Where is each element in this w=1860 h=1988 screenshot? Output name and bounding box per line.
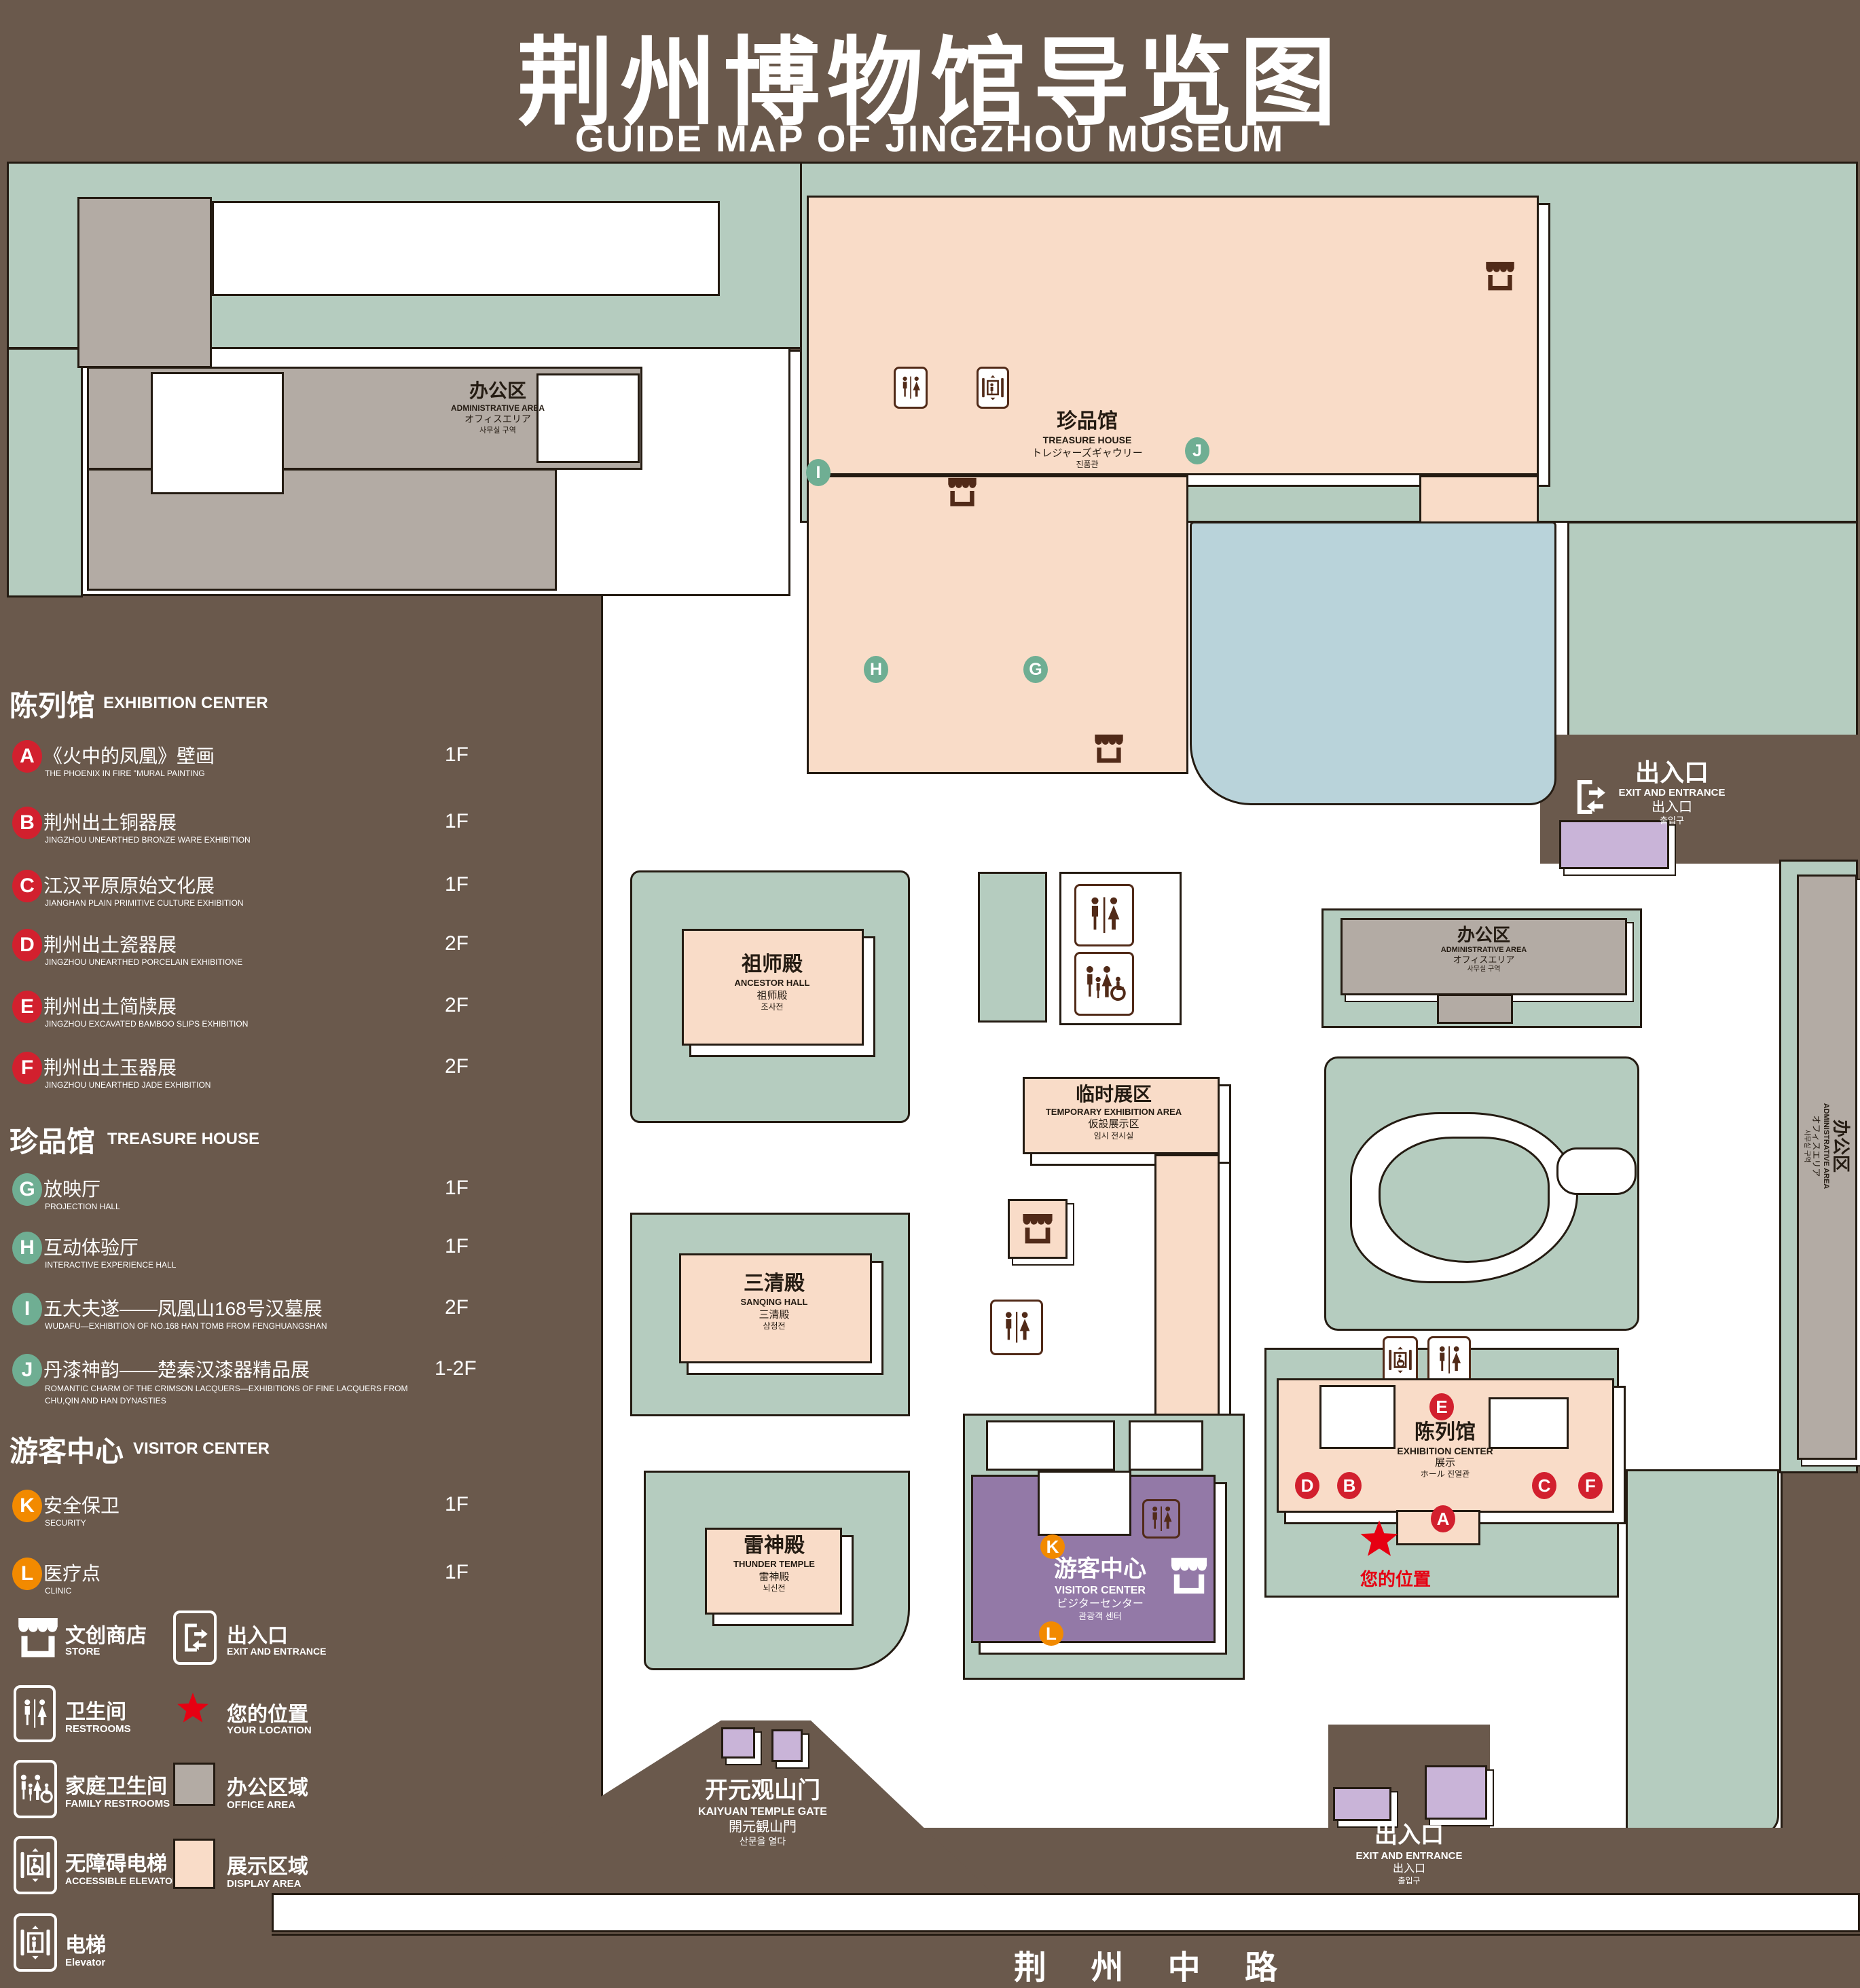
exit-bottom-building-east	[1425, 1765, 1487, 1820]
legend-item-B-zh: 荆州出土铜器展	[43, 808, 177, 835]
exit-bottom-label: 出入口 EXIT AND ENTRANCE 出入口 출입구	[1307, 1821, 1511, 1886]
legend-icon-elevator-zh: 电梯	[65, 1928, 106, 1958]
legend-item-F-floor: 2F	[445, 1055, 469, 1078]
legend-icon-location-zh: 您的位置	[227, 1697, 308, 1727]
restroom-icon	[14, 1685, 56, 1742]
gate-label: 开元观山门 KAIYUAN TEMPLE GATE 開元観山門 산문을 열다	[661, 1776, 864, 1847]
store-icon	[1484, 258, 1516, 293]
thunder-temple-label: 雷神殿 THUNDER TEMPLE 雷神殿 뇌신전	[686, 1533, 862, 1594]
lawn-right-upper	[1567, 521, 1858, 737]
legend-item-J-floor: 1-2F	[435, 1357, 477, 1380]
legend-icon-location-en: YOUR LOCATION	[227, 1725, 312, 1736]
legend-item-L-zh: 医疗点	[43, 1559, 101, 1586]
legend-badge-E: E	[12, 991, 42, 1023]
legend-icon-family-en: FAMILY RESTROOMS	[65, 1798, 170, 1809]
legend-icon-display-zh: 展示区域	[227, 1849, 308, 1879]
restroom-icon	[990, 1300, 1043, 1355]
legend-icon-restroom-zh: 卫生间	[65, 1695, 126, 1725]
admin-right-tab	[1437, 994, 1513, 1024]
store-icon	[947, 474, 978, 509]
ancestor-hall-label: 祖师殿 ANCESTOR HALL 祖师殿 조사전	[684, 952, 860, 1013]
legend-section-exhibition-zh: 陈列馆	[10, 683, 95, 724]
family-restroom-icon	[1074, 952, 1134, 1016]
legend-icon-store-zh: 文创商店	[65, 1619, 147, 1649]
display-area-swatch	[173, 1839, 215, 1889]
restroom-icon	[1142, 1499, 1180, 1539]
map-marker-B: B	[1337, 1472, 1362, 1499]
legend-item-F-zh: 荆州出土玉器展	[43, 1053, 177, 1080]
legend-icon-office-en: OFFICE AREA	[227, 1799, 295, 1811]
legend-badge-J: J	[12, 1354, 42, 1386]
map-marker-F: F	[1578, 1472, 1603, 1499]
legend-item-E-floor: 2F	[445, 994, 469, 1017]
map-marker-I: I	[806, 459, 831, 486]
road-sidewalk	[272, 1893, 1860, 1932]
legend-item-J-en: ROMANTIC CHARM OF THE CRIMSON LACQUERS—E…	[45, 1382, 412, 1407]
legend-item-C-zh: 江汉平原原始文化展	[43, 871, 215, 898]
admin-right-label: 办公区 ADMINISTRATIVE AREA オフィスエリア 사무실 구역	[1382, 925, 1586, 974]
legend-item-A-zh: 《火中的凤凰》壁画	[43, 741, 215, 769]
lawn-center-small	[978, 872, 1047, 1023]
lawn-right-lower	[1626, 1469, 1779, 1836]
elevator-icon	[977, 367, 1009, 409]
legend-item-H-floor: 1F	[445, 1235, 469, 1258]
legend-section-exhibition-en: EXHIBITION CENTER	[103, 694, 268, 713]
legend-item-D-en: JINGZHOU UNEARTHED PORCELAIN EXHIBITIONE	[45, 957, 242, 967]
legend-item-H-en: INTERACTIVE EXPERIENCE HALL	[45, 1260, 176, 1270]
office-area-swatch	[173, 1763, 215, 1806]
legend-badge-F: F	[12, 1052, 42, 1084]
legend-badge-D: D	[12, 929, 42, 961]
legend-item-I-en: WUDAFU—EXHIBITION OF NO.168 HAN TOMB FRO…	[45, 1321, 327, 1331]
elevator-icon	[14, 1913, 57, 1972]
sanqing-hall-label: 三清殿 SANQING HALL 三清殿 삼청전	[686, 1271, 862, 1332]
legend-badge-H: H	[12, 1232, 42, 1264]
restroom-icon	[1074, 884, 1134, 946]
legend-icon-office-zh: 办公区域	[227, 1771, 308, 1801]
lawn-left-strip	[7, 348, 83, 597]
legend-item-F-en: JINGZHOU UNEARTHED JADE EXHIBITION	[45, 1080, 211, 1090]
legend-badge-I: I	[12, 1293, 42, 1325]
map-marker-K: K	[1040, 1534, 1065, 1559]
legend-icon-accessible-en: ACCESSIBLE ELEVATOR	[65, 1875, 179, 1886]
legend-item-A-floor: 1F	[445, 743, 469, 767]
legend-badge-A: A	[12, 740, 42, 773]
legend-icon-display-en: DISPLAY AREA	[227, 1878, 301, 1890]
visitor-courtyard-1	[986, 1420, 1115, 1471]
legend-icon-accessible-zh: 无障碍电梯	[65, 1847, 167, 1877]
legend-icon-elevator-en: Elevator	[65, 1957, 105, 1968]
guide-map-page: 荆州博物馆导览图 GUIDE MAP OF JINGZHOU MUSEUM 办公…	[0, 0, 1860, 1988]
exit-bottom-building-west	[1333, 1787, 1391, 1821]
your-location-text: 您的位置	[1341, 1566, 1450, 1591]
legend-item-I-floor: 2F	[445, 1296, 469, 1319]
temporary-exhibition-label: 临时展区 TEMPORARY EXHIBITION AREA 仮設展示区 임시 …	[1012, 1082, 1216, 1141]
family-restroom-icon	[14, 1760, 57, 1818]
legend-icon-restroom-en: RESTROOMS	[65, 1723, 131, 1735]
map-marker-J: J	[1185, 437, 1209, 464]
store-icon	[16, 1615, 60, 1659]
legend-item-A-en: THE PHOENIX IN FIRE "MURAL PAINTING	[45, 769, 205, 778]
legend-item-C-floor: 1F	[445, 873, 469, 896]
map-marker-L: L	[1039, 1621, 1063, 1646]
legend-section-treasure-en: TREASURE HOUSE	[107, 1130, 259, 1149]
legend-item-K-zh: 安全保卫	[43, 1491, 120, 1518]
restroom-icon	[1427, 1336, 1471, 1384]
legend-icon-family-zh: 家庭卫生间	[65, 1769, 167, 1799]
map-marker-C: C	[1532, 1472, 1556, 1499]
map-marker-H: H	[864, 656, 888, 683]
exit-top-building	[1559, 820, 1669, 869]
visitor-notch	[1038, 1471, 1131, 1536]
exit-top-label: 出入口 EXIT AND ENTRANCE 出入口 출입구	[1570, 758, 1774, 826]
admin-top-label: 办公区 ADMINISTRATIVE AREA オフィスエリア 사무실 구역	[396, 379, 600, 435]
legend-icon-exit-en: EXIT AND ENTRANCE	[227, 1646, 327, 1657]
admin-side-label: 办公区 ADMINISTRATIVE AREA オフィスエリア 사무실 구역	[1802, 1044, 1851, 1248]
visitor-center-label: 游客中心 VISITOR CENTER ビジターセンター 관광객 센터	[998, 1555, 1202, 1622]
your-location-star-icon	[1358, 1520, 1400, 1560]
road-label: 荆 州 中 路	[944, 1940, 1365, 1988]
location-star-icon	[175, 1692, 211, 1726]
pond	[1190, 521, 1556, 805]
legend-item-G-zh: 放映厅	[43, 1175, 101, 1202]
legend-item-B-en: JINGZHOU UNEARTHED BRONZE WARE EXHIBITIO…	[45, 835, 251, 845]
map-marker-A: A	[1431, 1505, 1455, 1532]
temporary-exhibition-wing	[1154, 1154, 1220, 1427]
admin-top-courtyard-1	[151, 372, 284, 494]
legend-section-visitor-zh: 游客中心	[10, 1429, 124, 1470]
gate-building-east	[771, 1729, 803, 1762]
map-marker-D: D	[1295, 1472, 1319, 1499]
legend-item-G-floor: 1F	[445, 1177, 469, 1200]
treasure-house-label: 珍品馆 TREASURE HOUSE トレジャーズギャウリー 진품관	[985, 409, 1189, 471]
legend-section-visitor-en: VISITOR CENTER	[133, 1439, 270, 1458]
legend-item-G-en: PROJECTION HALL	[45, 1202, 120, 1211]
legend-item-J-zh: 丹漆神韵——楚秦汉漆器精品展	[43, 1355, 310, 1382]
legend-badge-G: G	[12, 1173, 42, 1206]
legend-item-L-en: CLINIC	[45, 1586, 71, 1596]
visitor-courtyard-2	[1129, 1420, 1203, 1471]
accessible-elevator-icon	[1383, 1336, 1418, 1384]
exit-icon	[173, 1610, 217, 1665]
restroom-icon	[894, 367, 928, 409]
store-icon	[1021, 1210, 1054, 1247]
legend-item-E-en: JINGZHOU EXCAVATED BAMBOO SLIPS EXHIBITI…	[45, 1019, 248, 1029]
legend-item-E-zh: 荆州出土简牍展	[43, 992, 177, 1019]
building-white-north	[212, 201, 720, 296]
legend-badge-B: B	[12, 807, 42, 839]
legend-item-I-zh: 五大夫遂——凤凰山168号汉墓展	[43, 1294, 323, 1321]
legend-item-D-floor: 2F	[445, 932, 469, 955]
legend-badge-K: K	[12, 1490, 42, 1522]
legend-icon-exit-zh: 出入口	[227, 1619, 288, 1649]
legend-item-C-en: JIANGHAN PLAIN PRIMITIVE CULTURE EXHIBIT…	[45, 898, 244, 908]
accessible-elevator-icon	[14, 1836, 57, 1894]
exhibition-center-label: 陈列馆 EXHIBITION CENTER 展示 ホール 진열관	[1343, 1420, 1547, 1479]
store-icon	[1093, 731, 1125, 766]
garden-path-arm	[1556, 1147, 1637, 1195]
legend-item-L-floor: 1F	[445, 1561, 469, 1584]
legend-item-B-floor: 1F	[445, 810, 469, 833]
legend-item-K-en: SECURITY	[45, 1518, 86, 1528]
legend-icon-store-en: STORE	[65, 1646, 100, 1657]
admin-top-arm	[77, 197, 212, 368]
gate-building-west	[721, 1727, 755, 1759]
map-marker-G: G	[1023, 656, 1048, 683]
legend-badge-C: C	[12, 870, 42, 902]
legend-item-H-zh: 互动体验厅	[43, 1233, 139, 1260]
legend-badge-L: L	[12, 1558, 42, 1590]
treasure-house-south-wing	[807, 475, 1188, 774]
map-marker-E: E	[1429, 1393, 1454, 1420]
legend-item-D-zh: 荆州出土瓷器展	[43, 930, 177, 957]
page-subtitle: GUIDE MAP OF JINGZHOU MUSEUM	[0, 117, 1860, 160]
legend-item-K-floor: 1F	[445, 1493, 469, 1516]
legend-section-treasure-zh: 珍品馆	[10, 1119, 95, 1160]
